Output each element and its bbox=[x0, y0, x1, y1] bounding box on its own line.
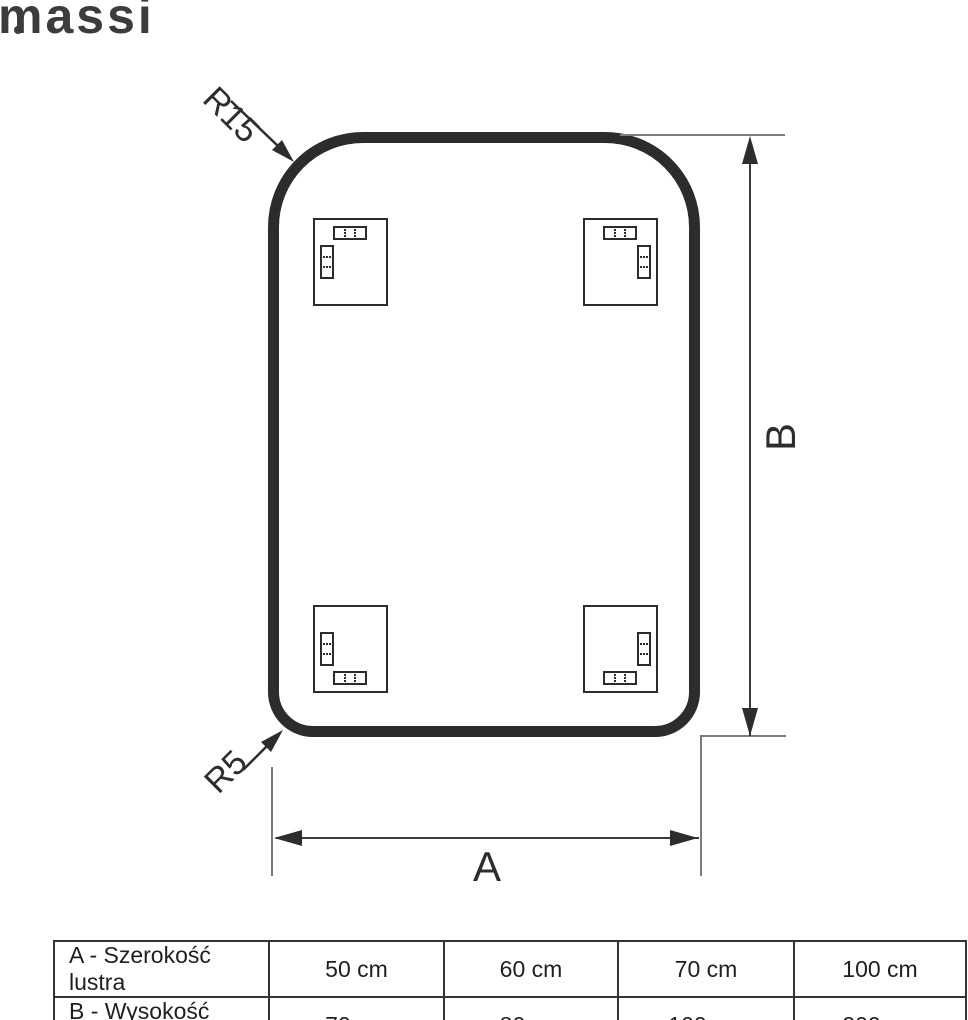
extension-line-a-right bbox=[700, 735, 702, 876]
screw-holes-icon bbox=[344, 229, 346, 237]
screw-holes-icon bbox=[354, 229, 356, 237]
dimension-line-a bbox=[276, 837, 699, 839]
row-label-width: A - Szerokość lustra bbox=[54, 941, 269, 997]
screw-holes-icon bbox=[344, 674, 346, 682]
width-dimension-label: A bbox=[457, 844, 517, 890]
screw-holes-icon bbox=[614, 674, 616, 682]
screw-holes-icon bbox=[614, 229, 616, 237]
table-row-width: A - Szerokość lustra 50 cm 60 cm 70 cm 1… bbox=[54, 941, 966, 997]
width-option: 60 cm bbox=[444, 941, 618, 997]
mounting-bracket-bottom-right bbox=[583, 605, 658, 693]
height-dimension-label: B bbox=[751, 407, 811, 467]
bracket-slot-vertical bbox=[320, 632, 334, 666]
screw-holes-icon bbox=[323, 256, 331, 258]
bracket-slot-horizontal bbox=[603, 671, 637, 685]
bracket-slot-horizontal bbox=[333, 671, 367, 685]
arrowhead-right-icon bbox=[670, 830, 698, 846]
width-option: 100 cm bbox=[794, 941, 966, 997]
width-option: 70 cm bbox=[618, 941, 794, 997]
height-option: 200 cm bbox=[794, 997, 966, 1020]
mirror-dimension-diagram: massi bbox=[0, 0, 968, 1020]
bracket-slot-vertical bbox=[320, 245, 334, 279]
r5-arrow-icon bbox=[235, 720, 295, 780]
screw-holes-icon bbox=[640, 266, 648, 268]
height-option: 100 cm bbox=[618, 997, 794, 1020]
screw-holes-icon bbox=[354, 674, 356, 682]
mounting-bracket-top-left bbox=[313, 218, 388, 306]
screw-holes-icon bbox=[624, 674, 626, 682]
height-option: 80 cm bbox=[444, 997, 618, 1020]
r15-arrow-icon bbox=[225, 95, 305, 175]
screw-holes-icon bbox=[323, 643, 331, 645]
bracket-slot-vertical bbox=[637, 632, 651, 666]
mounting-bracket-top-right bbox=[583, 218, 658, 306]
screw-holes-icon bbox=[323, 266, 331, 268]
bracket-slot-horizontal bbox=[333, 226, 367, 240]
row-label-height: B - Wysokość lustra bbox=[54, 997, 269, 1020]
arrowhead-up-icon bbox=[742, 136, 758, 164]
bracket-slot-vertical bbox=[637, 245, 651, 279]
screw-holes-icon bbox=[323, 653, 331, 655]
width-option: 50 cm bbox=[269, 941, 444, 997]
extension-line-b-top bbox=[620, 134, 785, 136]
size-table: A - Szerokość lustra 50 cm 60 cm 70 cm 1… bbox=[53, 940, 967, 1020]
mounting-bracket-bottom-left bbox=[313, 605, 388, 693]
logo-dot bbox=[14, 26, 22, 34]
screw-holes-icon bbox=[640, 256, 648, 258]
bracket-slot-horizontal bbox=[603, 226, 637, 240]
screw-holes-icon bbox=[624, 229, 626, 237]
height-option: 70 cm bbox=[269, 997, 444, 1020]
arrowhead-left-icon bbox=[274, 830, 302, 846]
extension-line-a-left bbox=[271, 767, 273, 876]
table-row-height: B - Wysokość lustra 70 cm 80 cm 100 cm 2… bbox=[54, 997, 966, 1020]
brand-logo: massi bbox=[0, 0, 155, 41]
arrowhead-down-icon bbox=[742, 708, 758, 736]
screw-holes-icon bbox=[640, 653, 648, 655]
screw-holes-icon bbox=[640, 643, 648, 645]
